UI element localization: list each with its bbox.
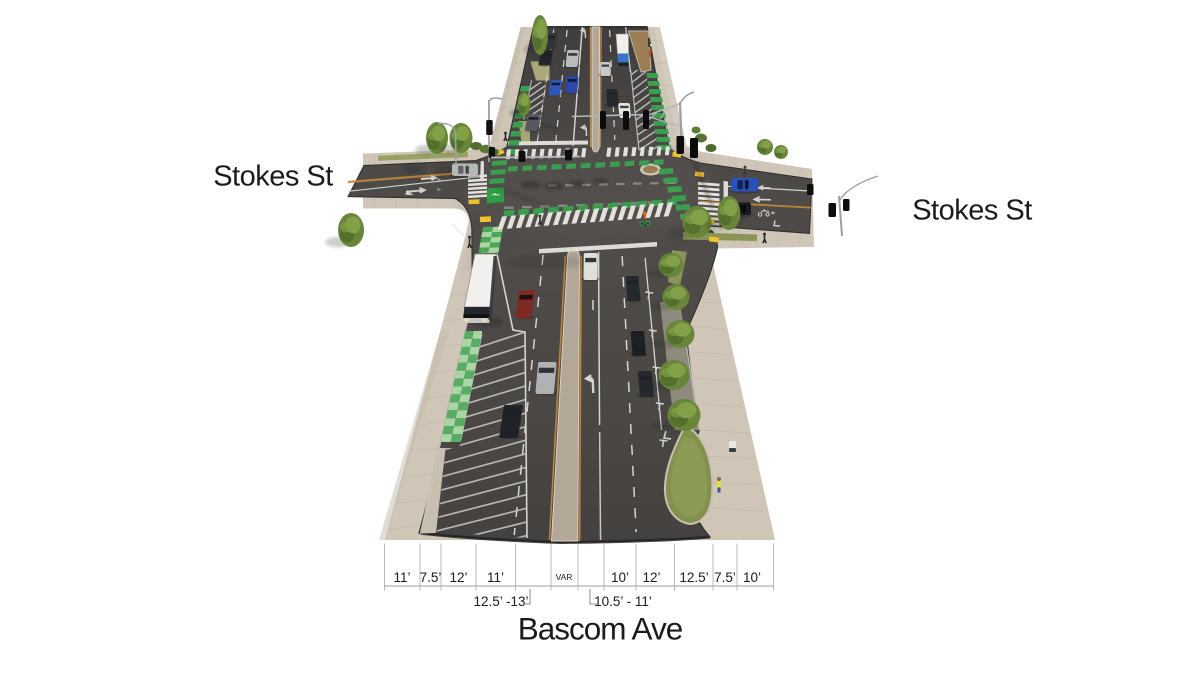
svg-text:Stokes St: Stokes St — [213, 161, 333, 193]
svg-text:12.5’ -13’: 12.5’ -13’ — [473, 594, 528, 609]
svg-text:12.5’: 12.5’ — [679, 570, 708, 585]
svg-text:10.5’ - 11’: 10.5’ - 11’ — [594, 594, 652, 609]
svg-text:7.5’: 7.5’ — [714, 570, 736, 585]
svg-text:10’: 10’ — [743, 570, 761, 585]
svg-text:7.5’: 7.5’ — [420, 570, 442, 585]
svg-text:12’: 12’ — [642, 570, 660, 585]
svg-text:11’: 11’ — [487, 570, 504, 585]
svg-text:Bascom Ave: Bascom Ave — [518, 611, 683, 647]
svg-text:11’: 11’ — [393, 570, 410, 585]
svg-text:Stokes St: Stokes St — [912, 195, 1032, 227]
svg-text:VAR: VAR — [556, 572, 573, 582]
svg-text:12’: 12’ — [449, 570, 467, 585]
svg-text:10’: 10’ — [611, 570, 629, 585]
